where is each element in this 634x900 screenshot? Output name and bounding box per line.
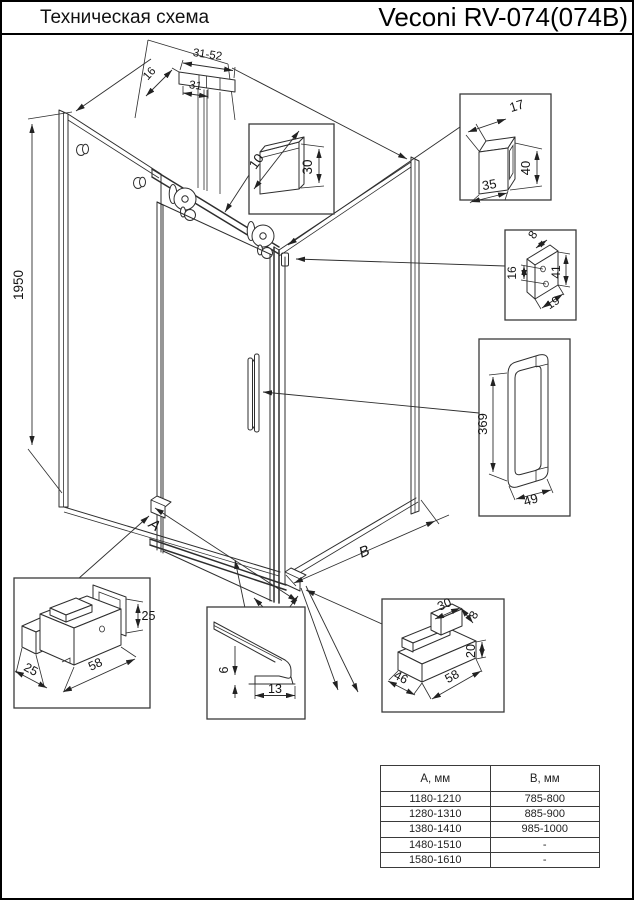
dim-threshold-height: 6 [217,666,231,673]
bottom-guide-block [151,496,171,518]
table-row: 1580-1610 - [381,852,600,867]
dim-post-width: 35 [481,176,498,193]
model-title: Veconi RV-074(074B) [378,2,628,33]
main-enclosure [59,110,419,603]
detail-box-corner-shoe: 30 8 20 46 58 [382,595,504,712]
detail-box-top-rail: 10 30 [246,124,334,214]
col-header-a: А, мм [381,766,491,792]
detail-box-corner-post: 17 40 35 [460,94,551,203]
detail-box-guide-block: 25 58 25 [14,578,155,708]
cell-a: 1180-1210 [381,792,491,807]
door-handle [248,354,259,432]
detail-box-wall-bracket: 8 16 41 19 [505,228,576,320]
dim-guide-height: 25 [142,609,156,623]
table-row: 1480-1510 - [381,837,600,852]
dim-bracket-hole-spacing: 16 [505,266,519,280]
technical-scheme-page: Техническая схема Veconi RV-074(074B) [0,0,634,900]
glass-knob [77,144,89,155]
table-row: 1280-1310 885-900 [381,807,600,822]
dimension-b: B [286,500,449,586]
corner-post [274,247,289,603]
detail-box-handle: 369 49 [475,339,570,516]
right-panel [279,157,419,580]
cell-b: 885-900 [490,807,600,822]
detail-box-threshold: 6 13 [207,607,305,719]
dim-top-profile-range: 31-52 [192,47,223,63]
dim-depth-label: B [356,542,372,562]
fixed-panel-top-edge [68,114,161,174]
dim-threshold-width: 13 [268,682,282,696]
dim-top-profile-inner: 31 [188,79,202,93]
roller [247,222,274,248]
page-title: Техническая схема [40,7,209,29]
cell-a: 1280-1310 [381,807,491,822]
roller [169,185,196,211]
cell-b: 985-1000 [490,822,600,837]
dim-rail-height: 30 [300,159,315,174]
cell-a: 1580-1610 [381,852,491,867]
glass-knob [134,177,146,188]
table-row: 1380-1410 985-1000 [381,822,600,837]
size-table: А, мм В, мм 1180-1210 785-800 1280-1310 … [380,765,600,868]
table-row: 1180-1210 785-800 [381,792,600,807]
cell-a: 1380-1410 [381,822,491,837]
dim-bracket-height: 41 [549,265,563,279]
wall-profile-section [179,72,235,92]
dim-handle-length: 369 [475,413,490,435]
detail-top-profile: 31-52 31 16 [135,40,235,194]
cell-b: 785-800 [490,792,600,807]
cell-b: - [490,837,600,852]
dim-shoe-height: 20 [464,644,478,658]
cell-b: - [490,852,600,867]
dim-post-height: 40 [518,161,533,175]
cell-a: 1480-1510 [381,837,491,852]
title-bar: Техническая схема Veconi RV-074(074B) [2,2,632,35]
col-header-b: В, мм [490,766,600,792]
dim-total-height: 1950 [11,270,26,300]
